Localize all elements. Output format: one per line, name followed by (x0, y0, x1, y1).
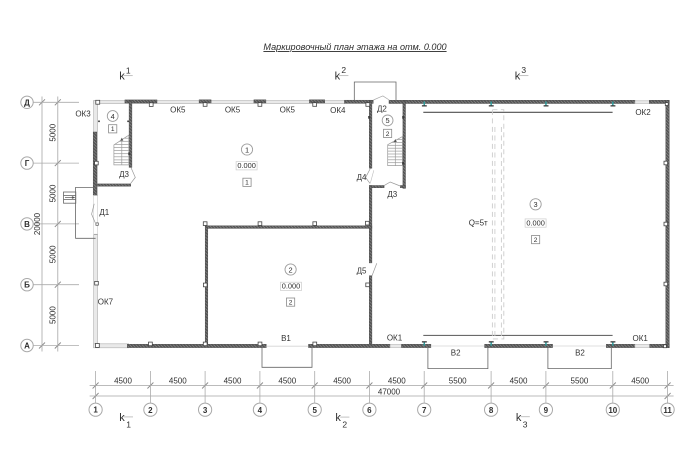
svg-text:47000: 47000 (378, 387, 401, 396)
svg-text:7: 7 (422, 406, 427, 415)
svg-text:1: 1 (111, 126, 115, 133)
svg-text:В2: В2 (575, 349, 585, 358)
svg-text:1: 1 (126, 420, 131, 430)
svg-text:ОК5: ОК5 (280, 106, 296, 115)
svg-text:5000: 5000 (49, 123, 58, 141)
svg-text:Б: Б (24, 281, 30, 290)
svg-text:Д1: Д1 (99, 208, 109, 217)
svg-text:ОК7: ОК7 (98, 298, 114, 307)
svg-text:4500: 4500 (169, 376, 187, 385)
svg-text:5000: 5000 (49, 184, 58, 202)
svg-text:5000: 5000 (49, 245, 58, 263)
svg-text:Маркировочный план этажа на от: Маркировочный план этажа на отм. 0.000 (263, 42, 446, 52)
svg-text:Д: Д (24, 98, 30, 107)
svg-text:10: 10 (608, 406, 617, 415)
svg-text:ОК5: ОК5 (170, 106, 186, 115)
svg-text:4: 4 (111, 112, 115, 121)
svg-text:9: 9 (544, 406, 549, 415)
svg-text:4500: 4500 (631, 376, 649, 385)
svg-text:5: 5 (386, 116, 390, 125)
svg-text:0.000: 0.000 (237, 161, 256, 170)
svg-text:1: 1 (93, 406, 98, 415)
svg-text:В: В (24, 220, 30, 229)
svg-text:ОК3: ОК3 (75, 109, 91, 118)
svg-text:2: 2 (148, 406, 153, 415)
svg-text:4500: 4500 (388, 376, 406, 385)
svg-text:4500: 4500 (278, 376, 296, 385)
svg-text:А: А (24, 342, 30, 351)
svg-text:Д2: Д2 (377, 104, 387, 113)
svg-text:6: 6 (367, 406, 372, 415)
svg-text:1: 1 (126, 65, 131, 75)
svg-text:k: k (119, 412, 125, 424)
svg-text:2: 2 (386, 131, 390, 138)
svg-text:2: 2 (289, 265, 293, 274)
svg-text:Г: Г (25, 159, 30, 168)
svg-text:2: 2 (289, 300, 293, 307)
svg-text:k: k (119, 71, 125, 83)
svg-text:4500: 4500 (114, 376, 132, 385)
svg-text:3: 3 (521, 65, 526, 75)
svg-text:ОК4: ОК4 (330, 106, 346, 115)
svg-text:1: 1 (245, 180, 249, 187)
svg-text:Д3: Д3 (387, 190, 397, 199)
svg-text:5: 5 (312, 406, 317, 415)
svg-text:0.000: 0.000 (282, 282, 301, 291)
svg-text:2: 2 (341, 65, 346, 75)
svg-text:0.000: 0.000 (526, 218, 545, 227)
svg-text:2: 2 (342, 420, 347, 430)
svg-text:k: k (515, 71, 521, 83)
svg-text:k: k (335, 412, 341, 424)
svg-text:Д4: Д4 (357, 173, 367, 182)
svg-text:Q=5т: Q=5т (469, 218, 488, 227)
svg-text:5000: 5000 (49, 306, 58, 324)
svg-text:4500: 4500 (333, 376, 351, 385)
svg-text:В1: В1 (281, 334, 291, 343)
svg-text:11: 11 (663, 406, 672, 415)
svg-text:8: 8 (489, 406, 494, 415)
svg-text:5500: 5500 (449, 376, 467, 385)
svg-text:В2: В2 (451, 349, 461, 358)
svg-text:3: 3 (534, 200, 538, 209)
svg-text:ОК1: ОК1 (633, 334, 649, 343)
svg-text:4500: 4500 (510, 376, 528, 385)
svg-text:Д5: Д5 (357, 266, 367, 275)
svg-text:5500: 5500 (571, 376, 589, 385)
svg-text:3: 3 (203, 406, 208, 415)
svg-text:1: 1 (245, 145, 249, 154)
svg-text:k: k (516, 412, 522, 424)
svg-text:ОК5: ОК5 (225, 106, 241, 115)
svg-text:ОК1: ОК1 (387, 334, 403, 343)
svg-text:4500: 4500 (224, 376, 242, 385)
svg-text:4: 4 (258, 406, 263, 415)
svg-text:ОК2: ОК2 (635, 108, 651, 117)
svg-text:2: 2 (534, 237, 538, 244)
svg-text:Д3: Д3 (119, 170, 129, 179)
svg-text:k: k (335, 71, 341, 83)
svg-text:3: 3 (523, 419, 528, 429)
